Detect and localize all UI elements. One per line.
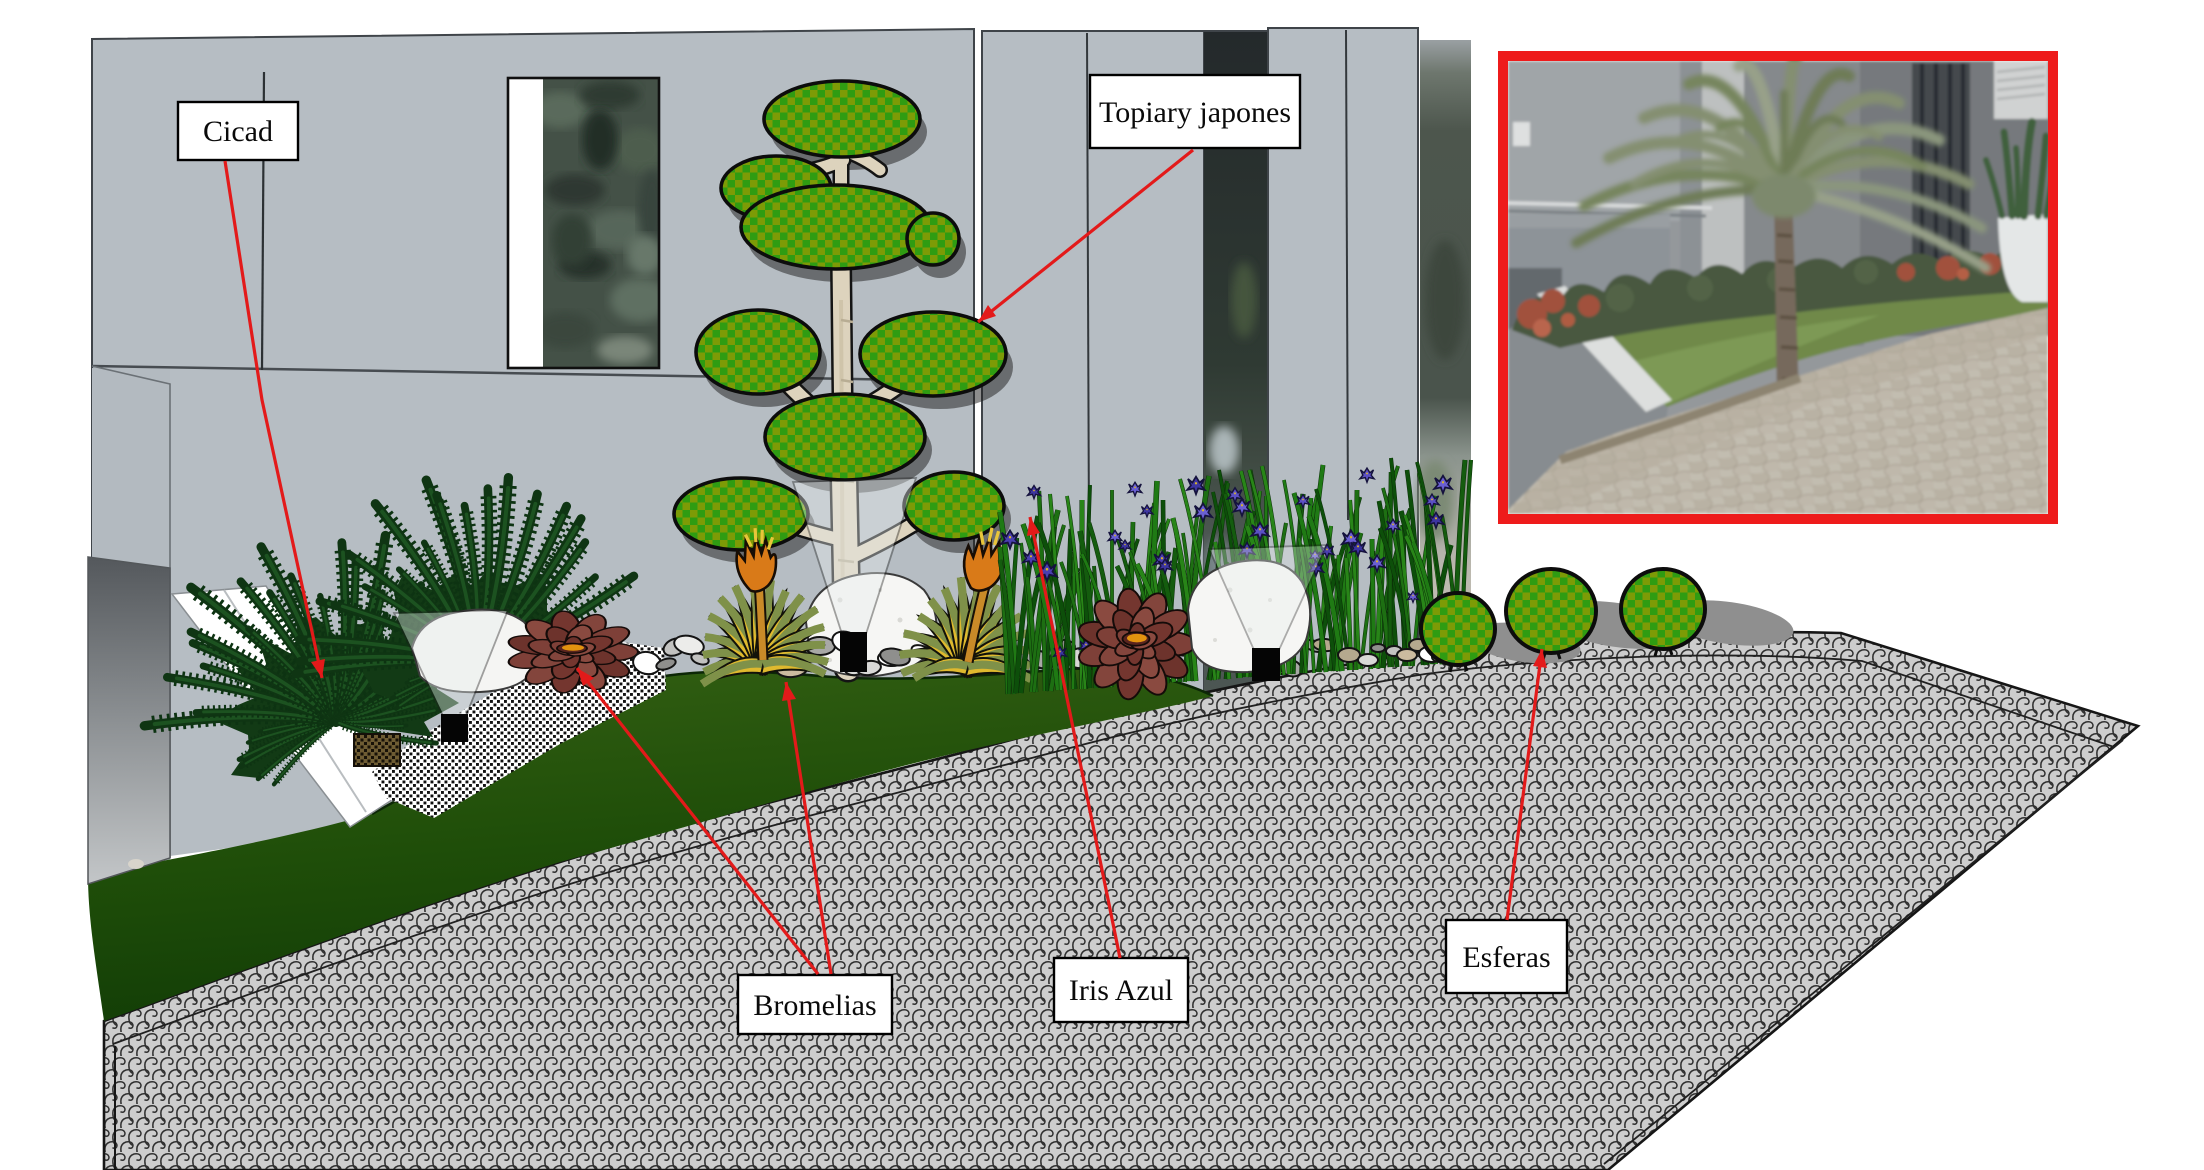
- svg-text:Cicad: Cicad: [203, 115, 273, 148]
- svg-text:Topiary japones: Topiary japones: [1099, 96, 1291, 129]
- svg-text:Bromelias: Bromelias: [753, 989, 876, 1022]
- svg-text:Iris Azul: Iris Azul: [1069, 974, 1173, 1007]
- svg-text:Esferas: Esferas: [1462, 941, 1550, 974]
